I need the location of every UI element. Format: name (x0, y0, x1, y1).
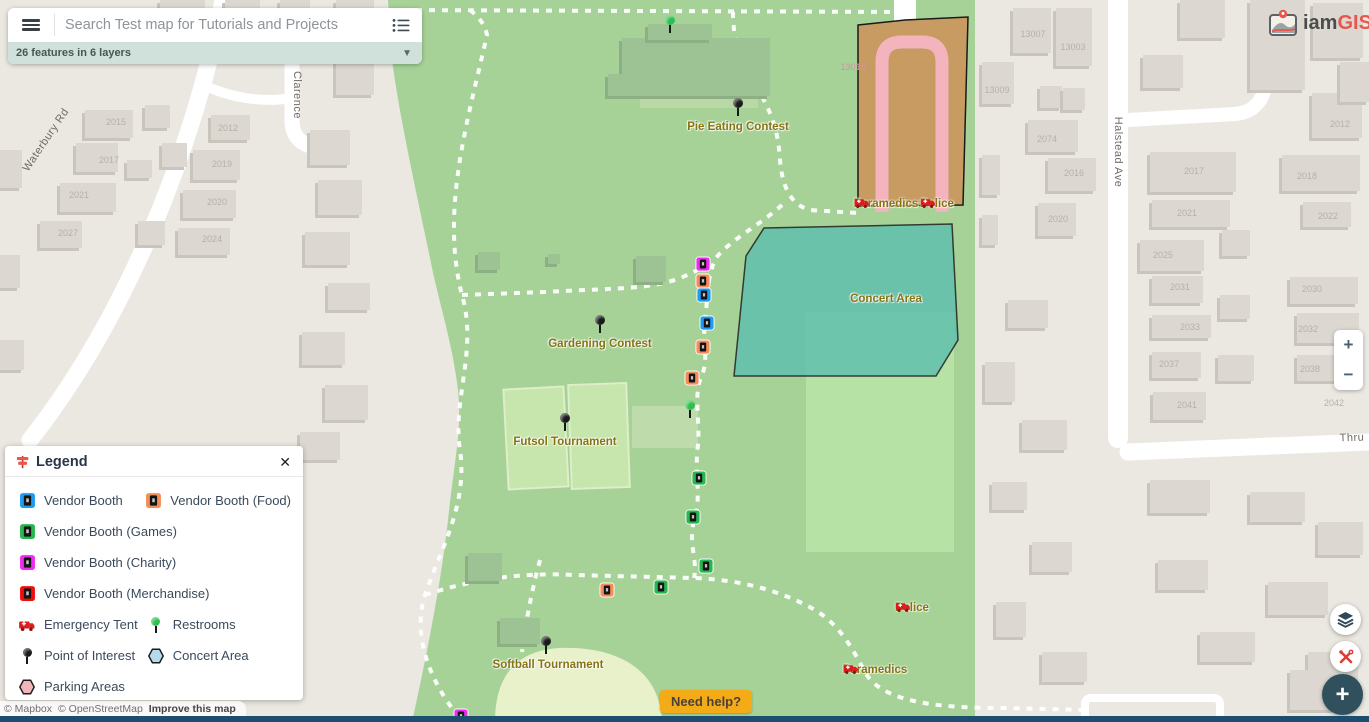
building-number: 2037 (1159, 359, 1179, 369)
building-number: 2017 (1184, 166, 1204, 176)
vendor-booth-marker-charity[interactable] (696, 257, 711, 272)
place-label: Gardening Contest (548, 338, 652, 350)
signpost-icon (15, 454, 30, 470)
legend-item-label: Emergency Tent (44, 617, 138, 632)
legend-title: Legend (36, 454, 277, 470)
building-number: 2018 (1297, 171, 1317, 181)
building (982, 215, 998, 245)
building-number: 2012 (1330, 119, 1350, 129)
street-label: Clarence (291, 71, 303, 119)
point-of-interest-pin-marker[interactable] (540, 636, 552, 655)
building (982, 62, 1014, 104)
emergency-tent-marker[interactable]: Police (920, 196, 954, 210)
emergency-tent-marker[interactable]: Paramedics (854, 196, 919, 210)
park-building (478, 252, 500, 270)
building (138, 221, 165, 245)
building (1042, 652, 1087, 682)
legend-item: Vendor Booth (Food) (143, 492, 291, 509)
building (1180, 0, 1225, 38)
emergency-tent-marker[interactable]: Paramedics (843, 662, 908, 676)
building-number: 2042 (1324, 398, 1344, 408)
legend-item: Concert Area (146, 647, 249, 665)
point-of-interest-pin-marker[interactable] (732, 98, 744, 117)
building (1008, 300, 1048, 328)
building-number: 2017 (99, 155, 119, 165)
building (985, 362, 1015, 402)
building-number: 13003 (1060, 42, 1085, 52)
point-of-interest-pin-marker[interactable] (559, 413, 571, 432)
chevron-down-icon: ▼ (402, 48, 412, 59)
building (1143, 55, 1183, 88)
building (310, 130, 350, 165)
building-number: 2025 (1153, 250, 1173, 260)
restroom-pin-marker[interactable] (684, 400, 696, 419)
tools-icon (1338, 649, 1354, 665)
zoom-in-button[interactable]: + (1334, 330, 1363, 360)
building (328, 283, 370, 310)
booth-icon (17, 585, 37, 602)
vendor-booth-marker-games[interactable] (699, 559, 714, 574)
legend-item-label: Point of Interest (44, 648, 135, 663)
building (1282, 155, 1360, 191)
map-photo-pin-icon (1268, 8, 1300, 38)
building (0, 340, 24, 370)
legend-row: Vendor Booth Vendor Booth (Food) (17, 485, 291, 516)
building-number: 2012 (218, 123, 238, 133)
park-building (648, 24, 712, 40)
building (1268, 582, 1328, 615)
add-feature-button[interactable]: + (1322, 674, 1363, 715)
building (300, 432, 340, 460)
booth-icon (17, 492, 37, 509)
place-label: Concert Area (850, 293, 922, 305)
building (162, 143, 187, 167)
zoom-control: + − (1334, 330, 1363, 390)
legend-row: Emergency Tent Restrooms (17, 609, 291, 640)
search-input[interactable] (55, 17, 380, 33)
building-number: 13018 (840, 62, 865, 72)
legend-row: Vendor Booth (Merchandise) (17, 578, 291, 609)
building-number: 2033 (1180, 322, 1200, 332)
iamgis-logo[interactable]: iamGIS (1268, 8, 1369, 38)
concert-area-polygon[interactable] (734, 224, 958, 376)
legend-item-label: Vendor Booth (Food) (170, 493, 291, 508)
building-number: 2024 (202, 234, 222, 244)
building-number: 2020 (207, 197, 227, 207)
features-summary-bar[interactable]: 26 features in 6 layers ▼ (8, 42, 422, 64)
building (996, 602, 1026, 637)
park-building (468, 553, 502, 581)
vendor-booth-marker-plain[interactable] (697, 288, 712, 303)
building-number: 2027 (58, 228, 78, 238)
ambulance-icon (17, 618, 37, 632)
zoom-out-button[interactable]: − (1334, 360, 1363, 390)
building (1318, 522, 1363, 555)
legend-row: Parking Areas (17, 671, 291, 702)
vendor-booth-marker-games[interactable] (686, 510, 701, 525)
map-attribution: © Mapbox © OpenStreetMap Improve this ma… (0, 701, 246, 716)
app-window: 2015201720212027201220192020202413007130… (0, 0, 1369, 722)
building (1220, 295, 1250, 319)
legend-item: Restrooms (146, 617, 236, 633)
legend-item-label: Vendor Booth (Games) (44, 524, 177, 539)
building (325, 385, 368, 420)
place-label: Pie Eating Contest (687, 121, 789, 133)
pin-icon (17, 648, 37, 664)
vendor-booth-marker-games[interactable] (654, 580, 669, 595)
building (1056, 8, 1092, 66)
building-number: 2020 (1048, 214, 1068, 224)
list-view-button[interactable] (380, 18, 422, 33)
legend-row: Point of Interest Concert Area (17, 640, 291, 671)
building (1340, 62, 1369, 102)
building-number: 2038 (1300, 364, 1320, 374)
building (1158, 560, 1208, 590)
legend-item-label: Vendor Booth (44, 493, 123, 508)
park-building (622, 38, 770, 96)
vendor-booth-marker-games[interactable] (692, 471, 707, 486)
emergency-tent-marker[interactable]: Police (895, 600, 929, 614)
place-label: Futsol Tournament (513, 436, 616, 448)
hex-icon (146, 647, 166, 665)
osm-attribution-link[interactable]: © OpenStreetMap (58, 703, 143, 715)
building-number: 2015 (106, 117, 126, 127)
building (127, 160, 152, 178)
building-number: 2041 (1177, 400, 1197, 410)
search-panel: 26 features in 6 layers ▼ (8, 8, 422, 64)
vendor-booth-marker-food[interactable] (600, 583, 615, 598)
building-number: 13009 (984, 85, 1009, 95)
legend-item: Parking Areas (17, 678, 125, 696)
building-number: 2022 (1318, 211, 1338, 221)
park-building (548, 254, 560, 264)
building (0, 150, 22, 188)
building-number: 2031 (1170, 282, 1190, 292)
building (992, 482, 1027, 510)
building-number: 13007 (1020, 29, 1045, 39)
legend-row: Vendor Booth (Charity) (17, 547, 291, 578)
booth-icon (17, 554, 37, 571)
building (318, 180, 362, 215)
list-icon (392, 18, 410, 33)
legend-item-label: Concert Area (173, 648, 249, 663)
street-label: Thru (1339, 432, 1364, 445)
park-building (500, 618, 540, 644)
legend-row: Vendor Booth (Games) (17, 516, 291, 547)
mapbox-attribution-link[interactable]: © Mapbox (4, 703, 52, 715)
features-summary-text: 26 features in 6 layers (16, 47, 131, 59)
legend-item: Vendor Booth (17, 492, 143, 509)
building (0, 255, 20, 288)
building (1063, 88, 1085, 110)
park-building (608, 74, 626, 96)
vendor-booth-marker-food[interactable] (696, 274, 711, 289)
legend-item-label: Restrooms (173, 617, 236, 632)
legend-item: Vendor Booth (Charity) (17, 554, 176, 571)
building (1022, 420, 1067, 450)
building-number: 2019 (212, 159, 232, 169)
tools-button[interactable] (1330, 641, 1361, 672)
booth-icon (143, 492, 163, 509)
building (1290, 277, 1358, 304)
need-help-button[interactable]: Need help? (660, 690, 752, 713)
building (145, 105, 170, 128)
building (1150, 480, 1210, 513)
building (302, 332, 345, 365)
vendor-booth-marker-plain[interactable] (700, 316, 715, 331)
close-icon[interactable]: ✕ (277, 454, 293, 471)
building-number: 2074 (1037, 134, 1057, 144)
building-number: 2021 (69, 190, 89, 200)
booth-icon (17, 523, 37, 540)
legend-item: Point of Interest (17, 648, 146, 664)
legend-item-label: Parking Areas (44, 679, 125, 694)
building (1222, 230, 1250, 256)
menu-button[interactable] (8, 17, 54, 33)
building (305, 232, 350, 265)
legend-item-label: Vendor Booth (Merchandise) (44, 586, 209, 601)
layers-button[interactable] (1330, 604, 1361, 635)
building (1250, 492, 1305, 522)
building-number: 2030 (1302, 284, 1322, 294)
improve-map-link[interactable]: Improve this map (149, 703, 236, 715)
building-number: 2032 (1298, 324, 1318, 334)
building (1200, 632, 1255, 662)
legend-panel: Legend ✕ Vendor Booth Vendor Booth (Food… (5, 446, 303, 700)
building (1218, 355, 1254, 381)
park-building (636, 256, 666, 282)
vendor-booth-marker-food[interactable] (685, 371, 700, 386)
pin-icon (146, 617, 166, 633)
logo-text: iamGIS (1303, 12, 1369, 35)
building (982, 155, 1000, 195)
place-label: Softball Tournament (493, 659, 604, 671)
legend-item: Emergency Tent (17, 617, 146, 632)
building-number: 2021 (1177, 208, 1197, 218)
building-number: 2016 (1064, 168, 1084, 178)
legend-item: Vendor Booth (Games) (17, 523, 177, 540)
street-label: Halstead Ave (1112, 117, 1124, 188)
restroom-pin-marker[interactable] (664, 15, 676, 34)
building (1040, 86, 1062, 108)
bottom-accent-bar (0, 716, 1369, 722)
vendor-booth-marker-food[interactable] (696, 340, 711, 355)
legend-item-label: Vendor Booth (Charity) (44, 555, 176, 570)
building (1032, 542, 1072, 572)
point-of-interest-pin-marker[interactable] (594, 315, 606, 334)
legend-item: Vendor Booth (Merchandise) (17, 585, 209, 602)
layers-icon (1337, 611, 1354, 628)
hex-icon (17, 678, 37, 696)
